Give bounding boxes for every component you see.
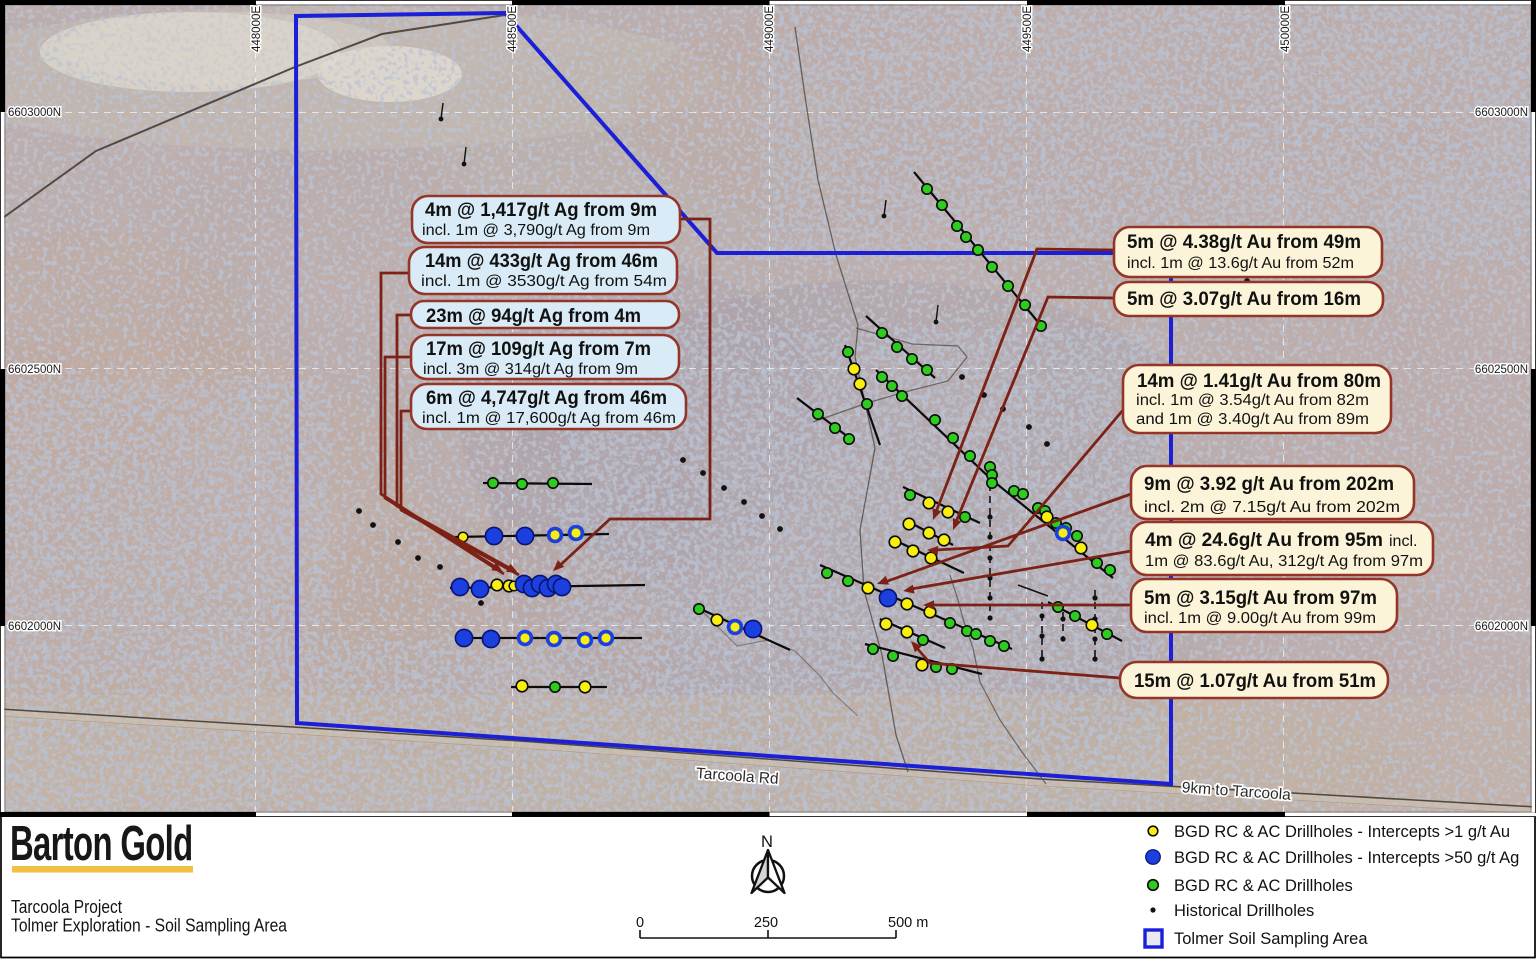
svg-text:0: 0 (636, 915, 644, 931)
svg-text:448000E: 448000E (251, 6, 263, 52)
svg-text:incl. 1m @ 3.54g/t Au from 82m: incl. 1m @ 3.54g/t Au from 82m (1136, 392, 1369, 409)
svg-text:4m @ 1,417g/t Ag from 9m: 4m @ 1,417g/t Ag from 9m (425, 200, 657, 221)
svg-text:449000E: 449000E (764, 6, 776, 52)
svg-text:6602500N: 6602500N (1475, 364, 1528, 376)
svg-text:15m @ 1.07g/t Au from 51m: 15m @ 1.07g/t Au from 51m (1134, 671, 1376, 692)
svg-text:incl. 2m @ 7.15g/t Au from 202: incl. 2m @ 7.15g/t Au from 202m (1144, 499, 1400, 516)
svg-text:BGD RC & AC Drillholes: BGD RC & AC Drillholes (1174, 877, 1353, 895)
svg-text:5m @ 3.07g/t Au from 16m: 5m @ 3.07g/t Au from 16m (1127, 289, 1361, 310)
svg-text:incl. 1m @ 3530g/t Ag from 54m: incl. 1m @ 3530g/t Ag from 54m (421, 273, 667, 290)
svg-text:Historical Drillholes: Historical Drillholes (1174, 902, 1314, 920)
svg-text:incl. 1m @ 17,600g/t Ag from 4: incl. 1m @ 17,600g/t Ag from 46m (422, 410, 676, 427)
svg-text:9m @ 3.92 g/t Au from 202m: 9m @ 3.92 g/t Au from 202m (1144, 474, 1394, 495)
svg-text:450000E: 450000E (1280, 6, 1292, 52)
svg-text:6m @ 4,747g/t Ag from 46m: 6m @ 4,747g/t Ag from 46m (426, 388, 667, 409)
svg-text:6602000N: 6602000N (1475, 621, 1528, 633)
svg-text:14m @ 433g/t Ag from 46m: 14m @ 433g/t Ag from 46m (425, 251, 658, 272)
svg-text:Tolmer Exploration - Soil Samp: Tolmer Exploration - Soil Sampling Area (11, 915, 288, 936)
svg-text:1m @ 83.6g/t Au, 312g/t Ag fro: 1m @ 83.6g/t Au, 312g/t Ag from 97m (1145, 553, 1423, 570)
svg-text:23m @ 94g/t Ag from 4m: 23m @ 94g/t Ag from 4m (426, 306, 641, 327)
svg-text:500 m: 500 m (888, 915, 928, 931)
svg-text:incl. 1m @ 9.00g/t Au from 99m: incl. 1m @ 9.00g/t Au from 99m (1144, 610, 1376, 627)
svg-text:incl.: incl. (1389, 533, 1417, 550)
svg-text:449500E: 449500E (1022, 6, 1034, 52)
svg-text:4m @ 24.6g/t Au from 95m: 4m @ 24.6g/t Au from 95m (1145, 530, 1383, 551)
svg-text:14m @ 1.41g/t Au from 80m: 14m @ 1.41g/t Au from 80m (1137, 371, 1381, 392)
svg-text:BGD RC & AC Drillholes - Inter: BGD RC & AC Drillholes - Intercepts >50 … (1174, 849, 1519, 867)
svg-text:6602000N: 6602000N (8, 621, 61, 633)
svg-text:incl. 1m @ 13.6g/t Au from 52m: incl. 1m @ 13.6g/t Au from 52m (1127, 255, 1354, 272)
svg-text:Tolmer Soil Sampling Area: Tolmer Soil Sampling Area (1174, 930, 1368, 948)
svg-text:6602500N: 6602500N (8, 364, 61, 376)
svg-text:6603000N: 6603000N (1475, 107, 1528, 119)
svg-text:Barton Gold: Barton Gold (10, 817, 193, 872)
svg-text:5m @ 4.38g/t Au from 49m: 5m @ 4.38g/t Au from 49m (1127, 232, 1361, 253)
svg-text:incl. 3m @ 314g/t Ag from 9m: incl. 3m @ 314g/t Ag from 9m (423, 361, 638, 378)
svg-text:448500E: 448500E (507, 6, 519, 52)
svg-text:17m @ 109g/t Ag from 7m: 17m @ 109g/t Ag from 7m (426, 339, 651, 360)
svg-text:BGD RC & AC Drillholes - Inter: BGD RC & AC Drillholes - Intercepts >1 g… (1174, 823, 1510, 841)
svg-text:incl. 1m @ 3,790g/t Ag from 9m: incl. 1m @ 3,790g/t Ag from 9m (422, 222, 650, 239)
svg-text:N: N (761, 833, 773, 851)
svg-text:and 1m @ 3.40g/t Au from 89m: and 1m @ 3.40g/t Au from 89m (1136, 411, 1369, 428)
svg-text:6603000N: 6603000N (8, 107, 61, 119)
svg-text:5m @ 3.15g/t Au from 97m: 5m @ 3.15g/t Au from 97m (1144, 588, 1377, 609)
svg-text:250: 250 (754, 915, 778, 931)
